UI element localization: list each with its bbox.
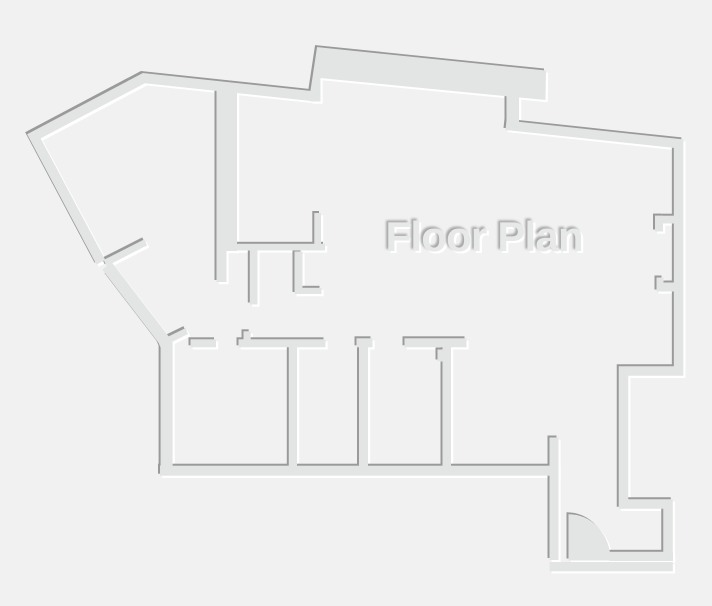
svg-text:Floor Plan: Floor Plan	[386, 213, 583, 260]
